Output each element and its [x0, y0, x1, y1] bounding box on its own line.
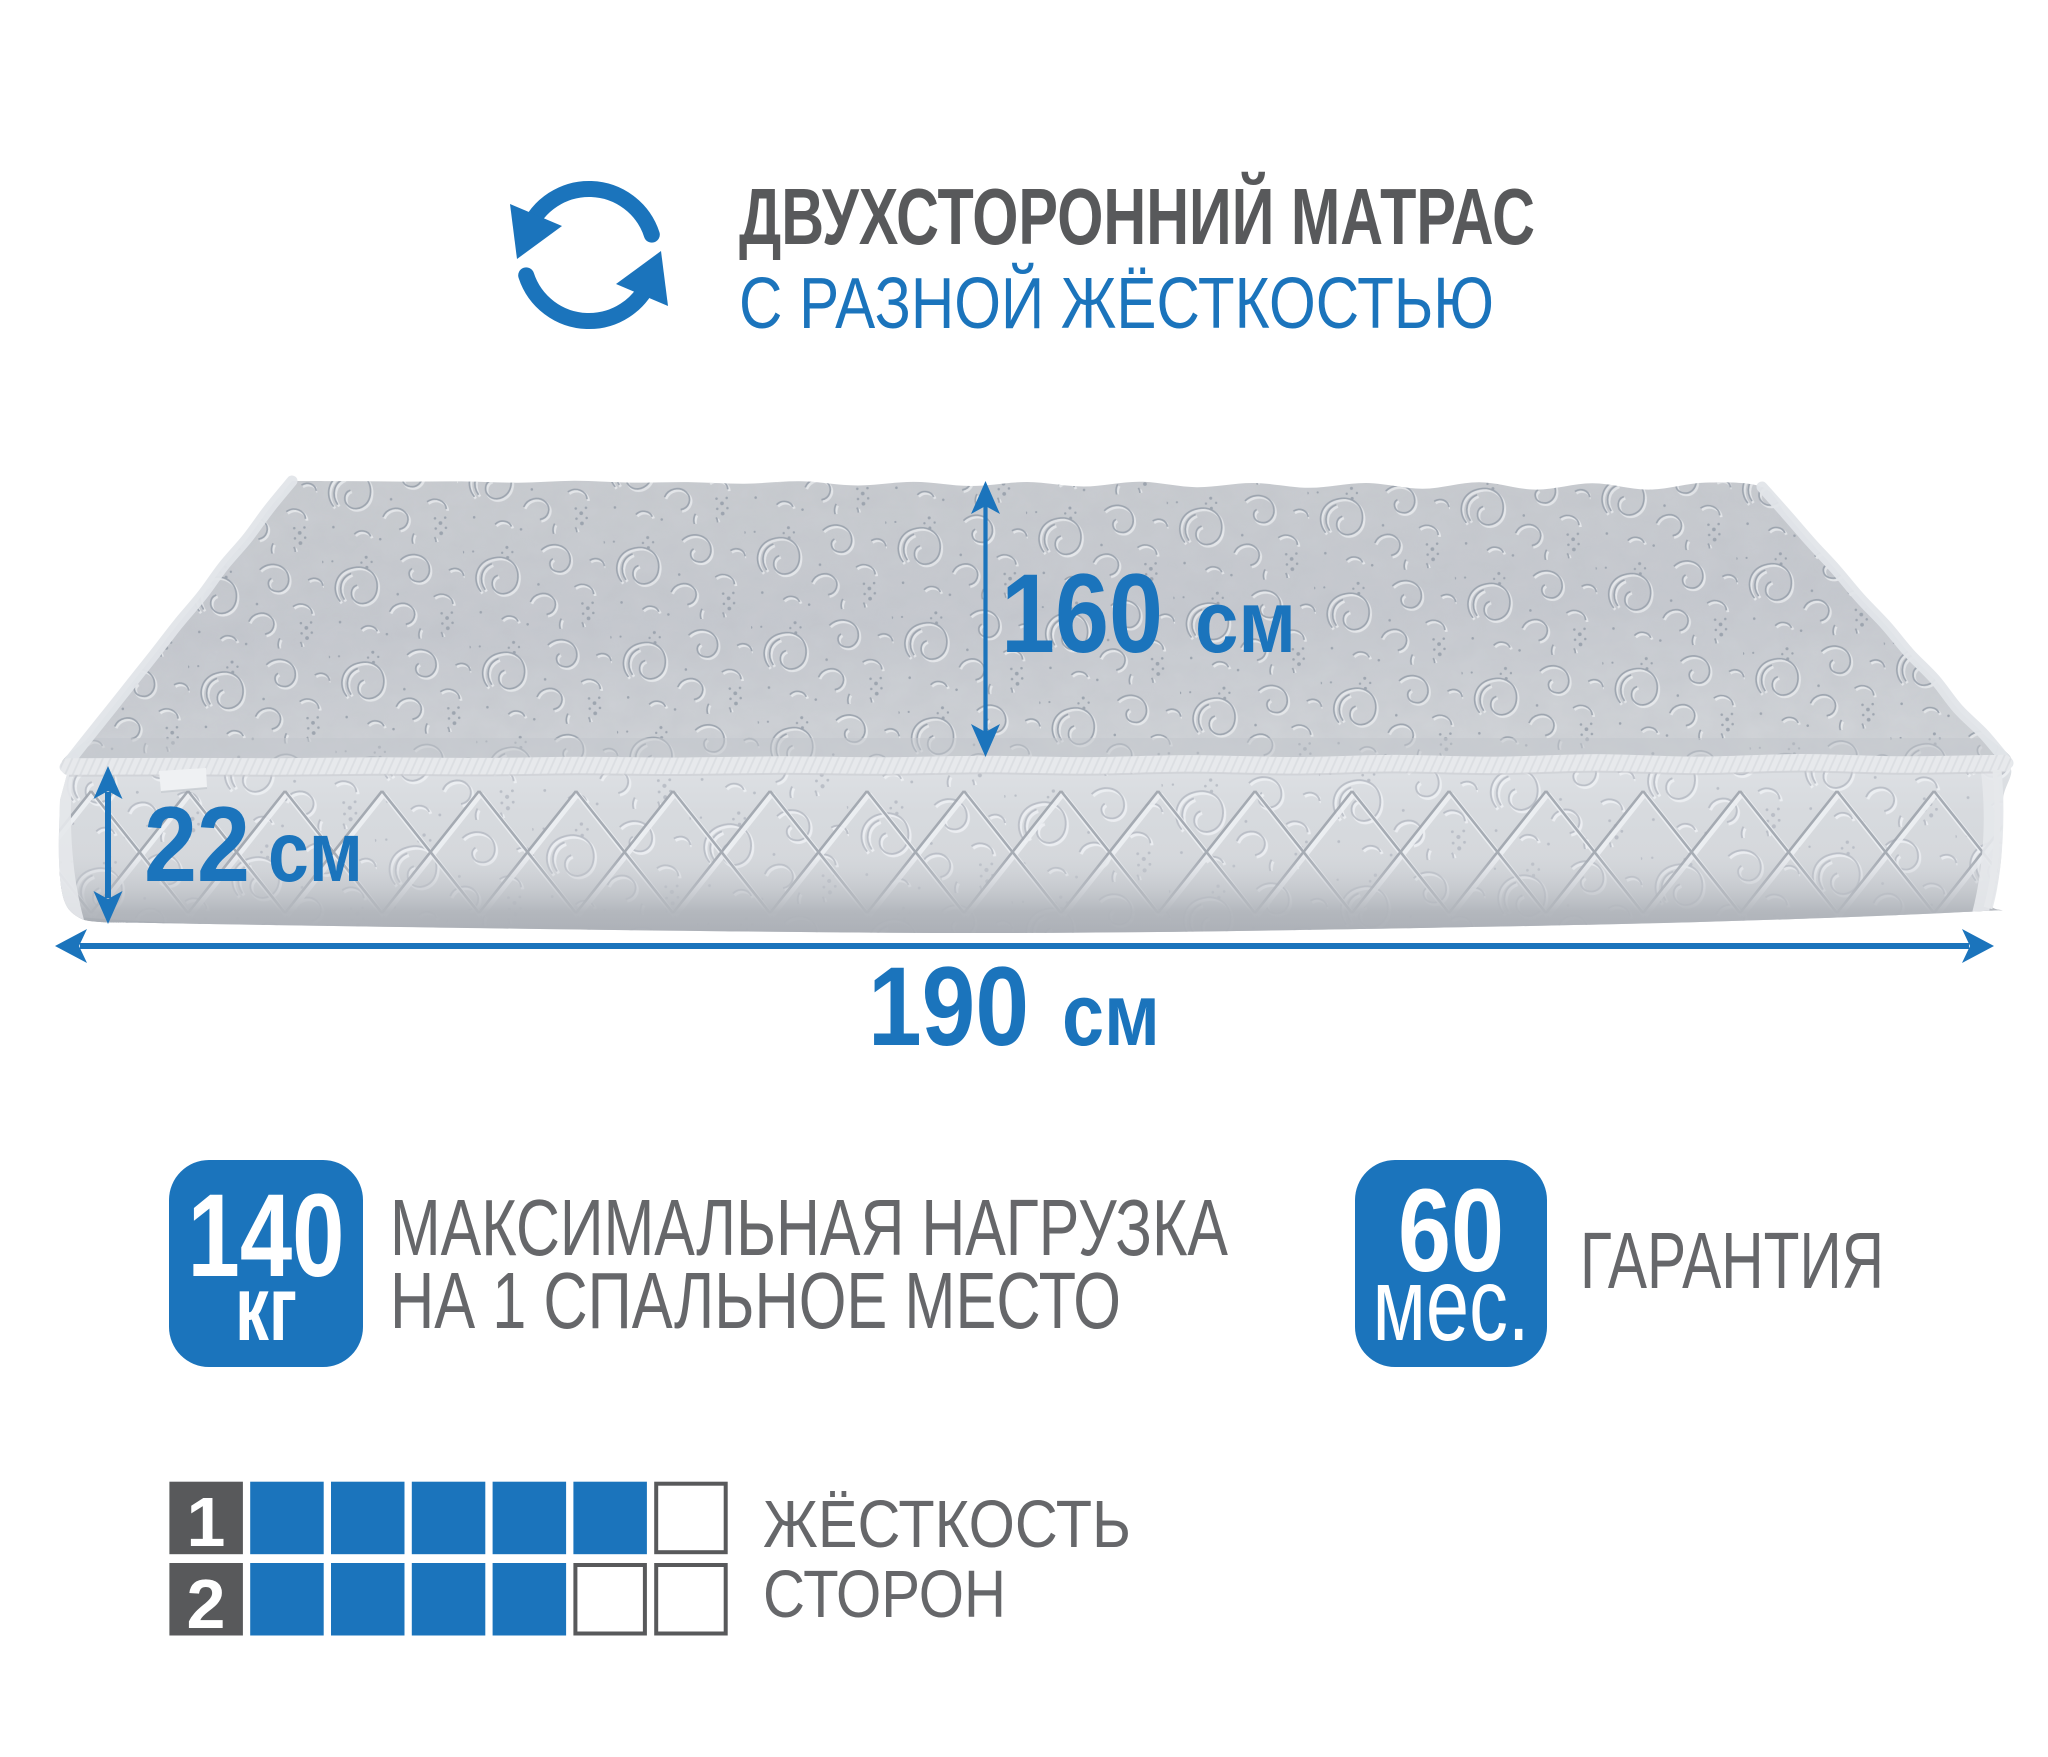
svg-text:1: 1: [187, 1483, 226, 1561]
svg-text:2: 2: [187, 1565, 226, 1643]
svg-text:22: 22: [144, 784, 250, 904]
svg-text:ГАРАНТИЯ: ГАРАНТИЯ: [1580, 1216, 1884, 1305]
svg-text:см: см: [1062, 965, 1160, 1064]
svg-text:НА 1 СПАЛЬНОЕ МЕСТО: НА 1 СПАЛЬНОЕ МЕСТО: [390, 1256, 1121, 1345]
svg-text:СТОРОН: СТОРОН: [763, 1557, 1006, 1632]
svg-text:см: см: [268, 805, 363, 900]
svg-text:мес.: мес.: [1373, 1247, 1530, 1363]
svg-text:ДВУХСТОРОННИЙ МАТРАС: ДВУХСТОРОННИЙ МАТРАС: [739, 171, 1535, 261]
svg-text:160: 160: [1001, 551, 1163, 676]
svg-text:С РАЗНОЙ ЖЁСТКОСТЬЮ: С РАЗНОЙ ЖЁСТКОСТЬЮ: [739, 262, 1494, 344]
svg-text:ЖЁСТКОСТЬ: ЖЁСТКОСТЬ: [763, 1487, 1131, 1562]
svg-text:кг: кг: [235, 1258, 297, 1360]
svg-text:см: см: [1195, 572, 1296, 671]
svg-text:190: 190: [868, 944, 1029, 1069]
